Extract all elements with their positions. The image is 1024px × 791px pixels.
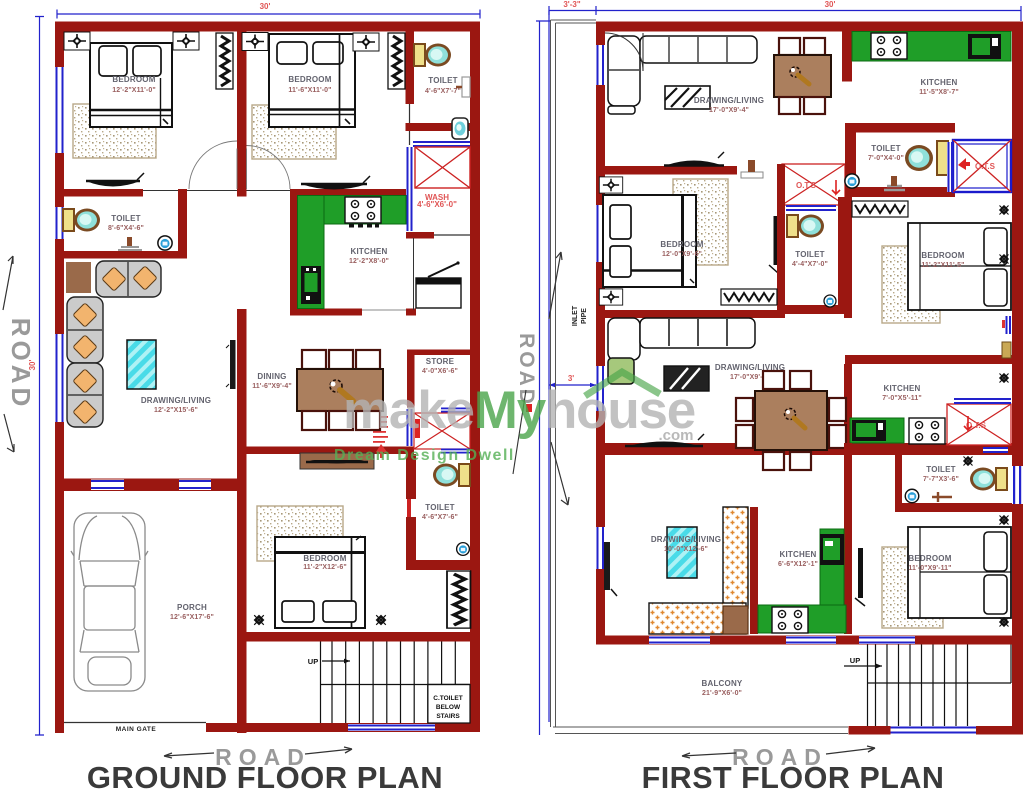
svg-text:BEDROOM: BEDROOM	[908, 554, 951, 563]
svg-text:O.T.S: O.T.S	[975, 162, 996, 171]
svg-text:4'-6"X6'-0": 4'-6"X6'-0"	[417, 200, 457, 209]
svg-text:30': 30'	[260, 2, 271, 11]
svg-text:BEDROOM: BEDROOM	[921, 251, 964, 260]
svg-text:11'-6"X9'-4": 11'-6"X9'-4"	[252, 383, 292, 390]
svg-text:11'-6"X11'-0": 11'-6"X11'-0"	[288, 87, 331, 94]
svg-text:11'-5"X8'-7": 11'-5"X8'-7"	[919, 89, 959, 96]
svg-text:12'-6"X17'-6": 12'-6"X17'-6"	[170, 614, 214, 621]
svg-text:7'-0"X5'-11": 7'-0"X5'-11"	[882, 395, 922, 402]
svg-text:KITCHEN: KITCHEN	[884, 384, 921, 393]
svg-text:21'-9"X6'-0": 21'-9"X6'-0"	[702, 690, 742, 697]
svg-text:PORCH: PORCH	[177, 603, 207, 612]
svg-text:BALCONY: BALCONY	[702, 679, 743, 688]
svg-text:PIPE: PIPE	[581, 308, 588, 324]
svg-text:UP: UP	[308, 657, 318, 666]
svg-text:DINING: DINING	[257, 372, 286, 381]
svg-text:UP: UP	[850, 656, 860, 665]
svg-text:DRAWING/LIVING: DRAWING/LIVING	[651, 535, 721, 544]
svg-text:6'-6"X12'-1": 6'-6"X12'-1"	[778, 561, 818, 568]
svg-text:10'-0"X12'-6": 10'-0"X12'-6"	[664, 546, 708, 553]
svg-text:FIRST FLOOR PLAN: FIRST FLOOR PLAN	[642, 761, 945, 791]
svg-text:30': 30'	[825, 0, 836, 9]
svg-text:INLET: INLET	[572, 305, 579, 326]
svg-text:12'-2"X15'-6": 12'-2"X15'-6"	[154, 407, 198, 414]
svg-text:11'-2"X12'-6": 11'-2"X12'-6"	[303, 564, 347, 571]
svg-text:7'-0"X4'-0": 7'-0"X4'-0"	[868, 155, 904, 162]
svg-text:BEDROOM: BEDROOM	[112, 75, 155, 84]
svg-text:DRAWING/LIVING: DRAWING/LIVING	[694, 96, 764, 105]
svg-text:12'-2"X8'-0": 12'-2"X8'-0"	[349, 258, 389, 265]
svg-text:KITCHEN: KITCHEN	[351, 247, 388, 256]
svg-text:11'-2"X11'-5": 11'-2"X11'-5"	[921, 262, 964, 269]
svg-text:3'-3": 3'-3"	[563, 0, 580, 9]
svg-text:TOILET: TOILET	[111, 214, 141, 223]
svg-text:C.TOILET: C.TOILET	[433, 695, 463, 702]
svg-text:TOILET: TOILET	[795, 250, 825, 259]
svg-text:.com: .com	[658, 427, 693, 444]
svg-text:ROAD: ROAD	[6, 318, 36, 411]
svg-text:12'-2"X11'-0": 12'-2"X11'-0"	[112, 87, 156, 94]
svg-text:11'-0"X9'-11": 11'-0"X9'-11"	[908, 565, 951, 572]
svg-text:4'-6"X7'-7": 4'-6"X7'-7"	[425, 88, 461, 95]
svg-text:8'-6"X4'-6": 8'-6"X4'-6"	[108, 225, 144, 232]
svg-text:BELOW: BELOW	[436, 704, 461, 711]
svg-text:O.T.S: O.T.S	[796, 181, 817, 190]
svg-text:STAIRS: STAIRS	[436, 713, 460, 720]
svg-text:DRAWING/LIVING: DRAWING/LIVING	[141, 396, 211, 405]
svg-text:TOILET: TOILET	[871, 144, 901, 153]
svg-text:7'-7"X3'-6": 7'-7"X3'-6"	[923, 476, 959, 483]
svg-text:12'-0"X9'-6": 12'-0"X9'-6"	[662, 251, 702, 258]
svg-text:MAIN GATE: MAIN GATE	[116, 726, 157, 733]
svg-text:TOILET: TOILET	[425, 503, 455, 512]
svg-text:KITCHEN: KITCHEN	[921, 78, 958, 87]
svg-text:4'-6"X7'-6": 4'-6"X7'-6"	[422, 514, 458, 521]
svg-text:TOILET: TOILET	[926, 465, 956, 474]
svg-text:BEDROOM: BEDROOM	[303, 554, 346, 563]
svg-text:BEDROOM: BEDROOM	[288, 75, 331, 84]
svg-text:17'-0"X9'-4": 17'-0"X9'-4"	[709, 107, 749, 114]
svg-text:TOILET: TOILET	[428, 76, 458, 85]
svg-text:makeMyhouse: makeMyhouse	[343, 381, 695, 440]
svg-text:Dream Design Dwell: Dream Design Dwell	[334, 447, 515, 464]
svg-text:KITCHEN: KITCHEN	[780, 550, 817, 559]
svg-text:BEDROOM: BEDROOM	[660, 240, 703, 249]
svg-text:4'-0"X6'-6": 4'-0"X6'-6"	[422, 368, 458, 375]
svg-text:STORE: STORE	[426, 357, 455, 366]
svg-text:4'-4"X7'-0": 4'-4"X7'-0"	[792, 261, 828, 268]
svg-text:GROUND FLOOR PLAN: GROUND FLOOR PLAN	[87, 760, 443, 791]
